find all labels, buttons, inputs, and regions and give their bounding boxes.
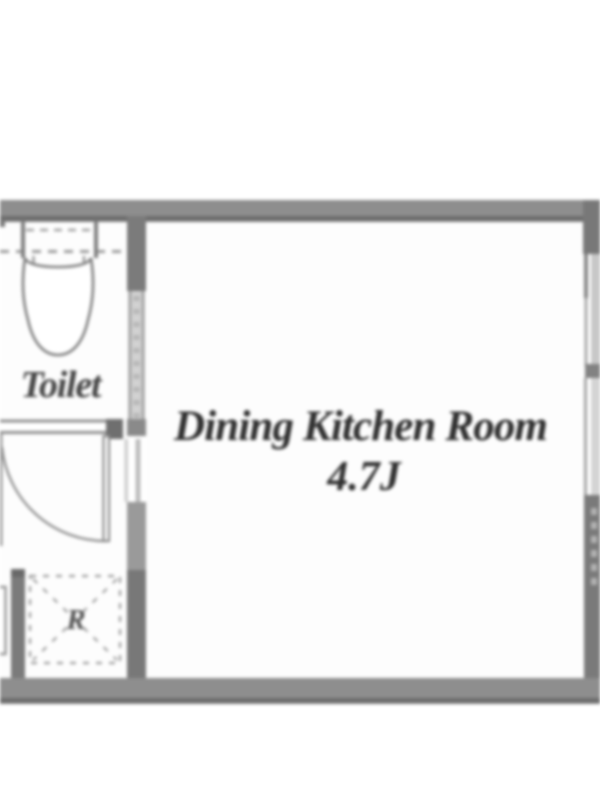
svg-text:4.7J: 4.7J [326, 454, 403, 500]
svg-text:R: R [65, 604, 85, 636]
svg-text:Dining Kitchen Room: Dining Kitchen Room [173, 403, 548, 450]
svg-text:Toilet: Toilet [21, 364, 103, 406]
